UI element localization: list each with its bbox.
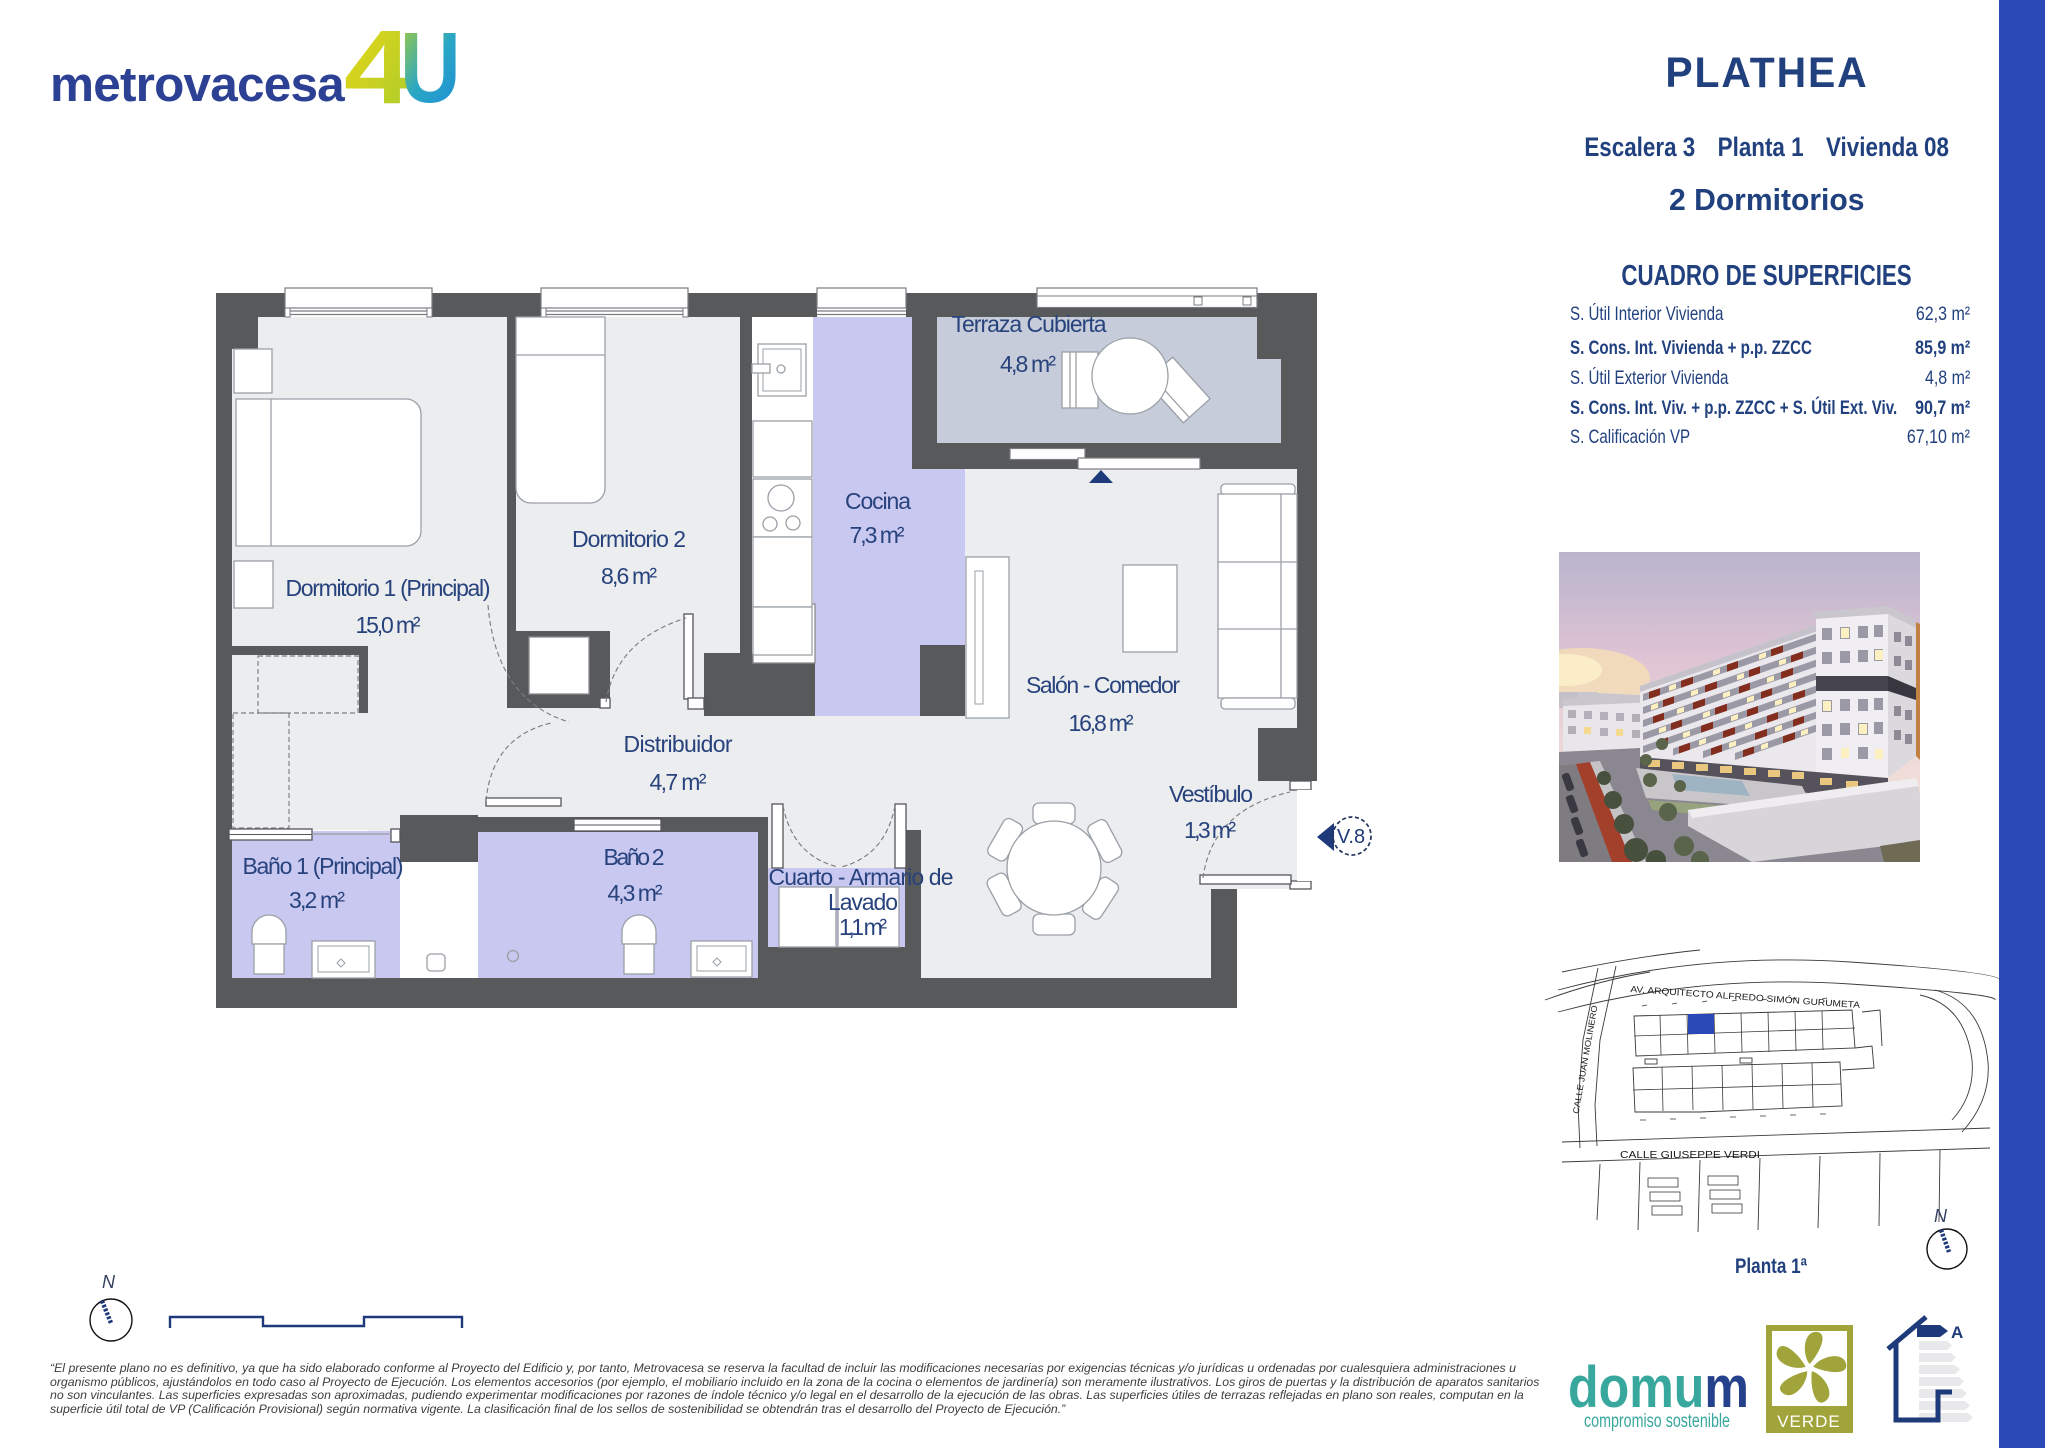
- svg-text:Terraza Cubierta: Terraza Cubierta: [952, 311, 1107, 337]
- svg-text:Planta 1ª: Planta 1ª: [1735, 1255, 1807, 1278]
- svg-text:Baño 1 (Principal): Baño 1 (Principal): [243, 853, 404, 879]
- svg-text:Cuarto - Armario de: Cuarto - Armario de: [769, 864, 954, 890]
- svg-text:Vestíbulo: Vestíbulo: [1169, 781, 1253, 807]
- svg-text:Cocina: Cocina: [845, 488, 911, 514]
- svg-text:15,0 m²: 15,0 m²: [356, 612, 421, 638]
- svg-text:3,2 m²: 3,2 m²: [289, 887, 345, 913]
- svg-text:U: U: [400, 11, 461, 124]
- svg-text:4,3 m²: 4,3 m²: [608, 880, 663, 906]
- svg-text:1,3 m²: 1,3 m²: [1184, 817, 1236, 843]
- svg-text:VERDE: VERDE: [1777, 1412, 1841, 1431]
- svg-text:7,3 m²: 7,3 m²: [850, 522, 905, 548]
- svg-text:N: N: [102, 1272, 116, 1292]
- svg-text:Dormitorio 2: Dormitorio 2: [572, 526, 686, 552]
- svg-text:16,8 m²: 16,8 m²: [1069, 710, 1134, 736]
- svg-text:4,7 m²: 4,7 m²: [650, 769, 707, 795]
- svg-text:8,6 m²: 8,6 m²: [601, 563, 657, 589]
- svg-text:Distribuidor: Distribuidor: [624, 731, 733, 757]
- svg-text:V.8: V.8: [1337, 826, 1365, 848]
- svg-text:CALLE GIUSEPPE VERDI: CALLE GIUSEPPE VERDI: [1620, 1150, 1760, 1161]
- svg-text:Salón - Comedor: Salón - Comedor: [1026, 672, 1180, 698]
- svg-text:Lavado: Lavado: [828, 889, 898, 915]
- svg-text:Dormitorio 1 (Principal): Dormitorio 1 (Principal): [286, 575, 491, 601]
- svg-text:AV. ARQUITECTO ALFREDO SIMÓN G: AV. ARQUITECTO ALFREDO SIMÓN GURUMETA: [1630, 984, 1860, 1010]
- svg-text:N: N: [1934, 1206, 1948, 1226]
- svg-text:compromiso sostenible: compromiso sostenible: [1584, 1411, 1730, 1432]
- svg-text:metrovacesa: metrovacesa: [50, 57, 345, 112]
- svg-text:Baño 2: Baño 2: [604, 844, 665, 870]
- svg-text:4,8 m²: 4,8 m²: [1000, 351, 1056, 377]
- svg-text:A: A: [1951, 1323, 1963, 1342]
- svg-text:1,1 m²: 1,1 m²: [839, 914, 887, 940]
